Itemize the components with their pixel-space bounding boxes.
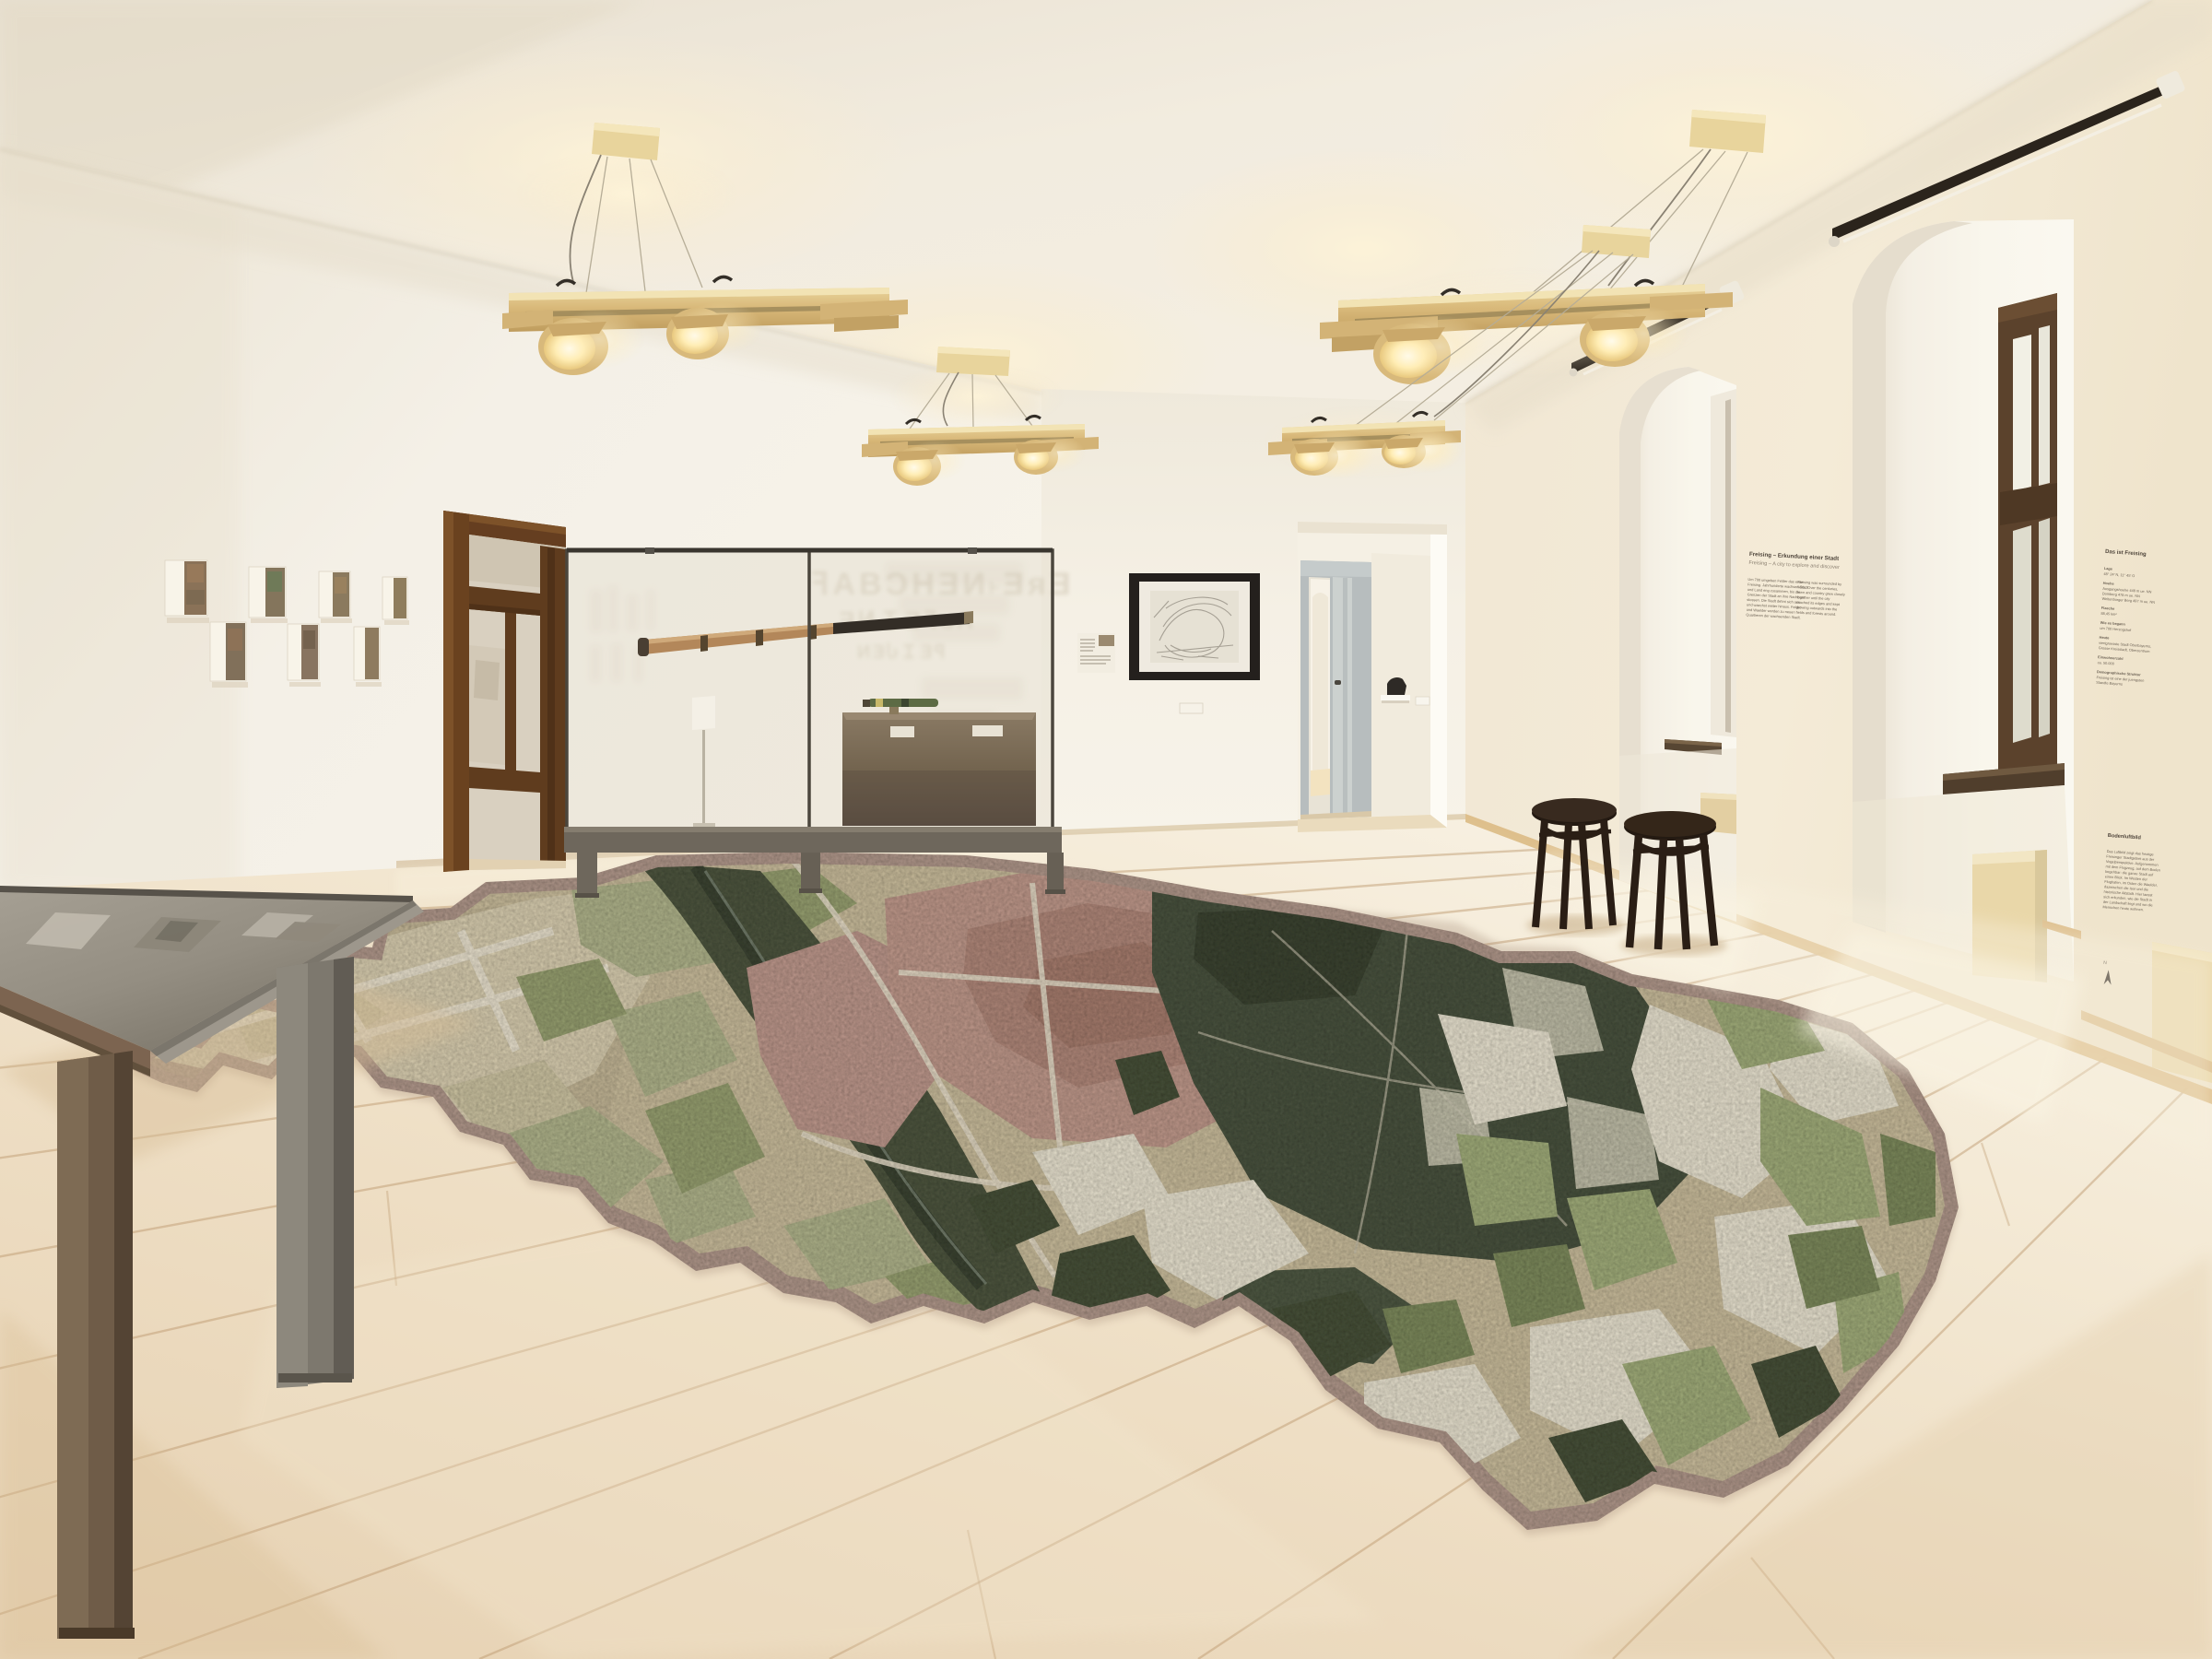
svg-text:Lage: Lage — [2104, 566, 2113, 571]
svg-text:Hoehe: Hoehe — [2103, 581, 2115, 586]
svg-text:Flaeche: Flaeche — [2101, 606, 2116, 611]
svg-text:Heute: Heute — [2099, 635, 2110, 641]
